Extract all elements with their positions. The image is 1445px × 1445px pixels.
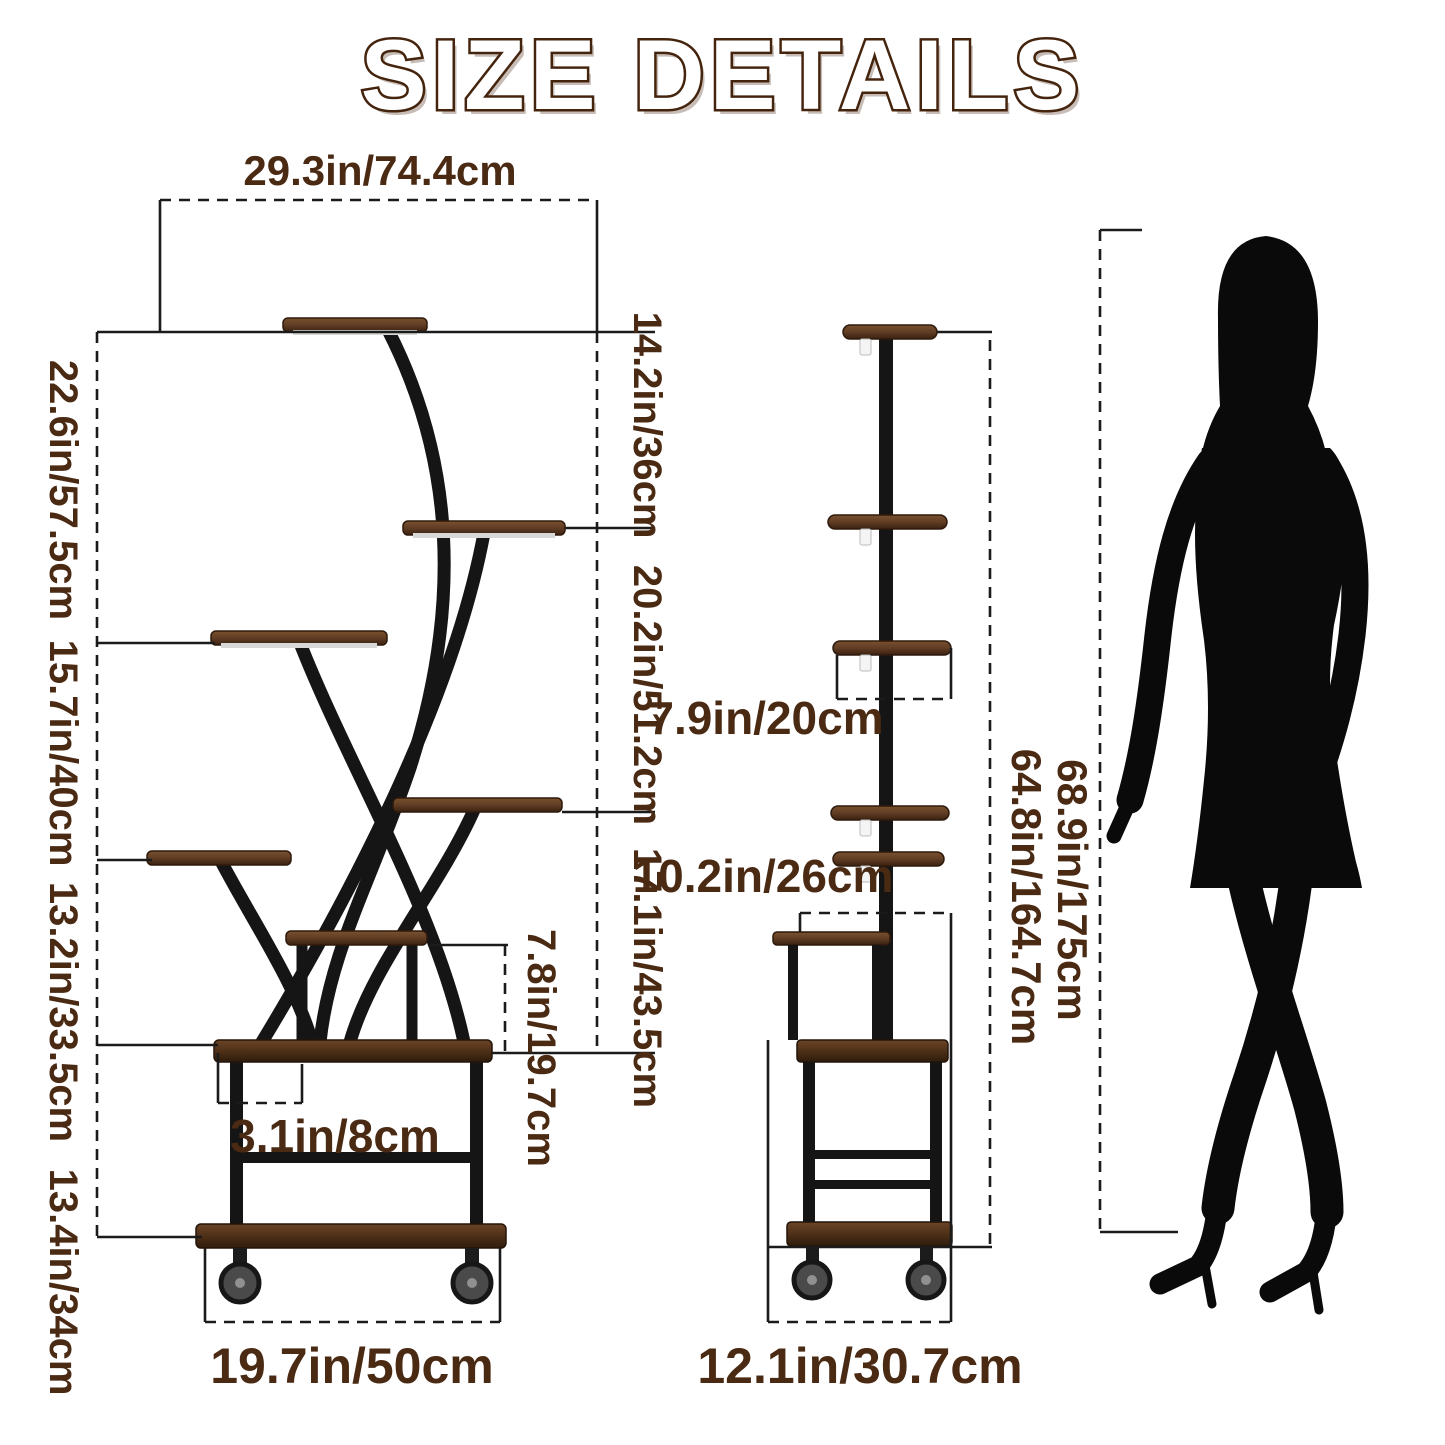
label-shelf-depth: 7.9in/20cm <box>648 692 883 744</box>
size-details-infographic: SIZE DETAILS <box>0 0 1445 1445</box>
caster-wheel <box>221 1248 259 1302</box>
label-height-segment-1: 22.6in/57.5cm <box>41 360 85 620</box>
side-shelf-2 <box>828 515 947 529</box>
label-height-segment-2: 15.7in/40cm <box>41 640 85 867</box>
front-shelf-2 <box>403 521 565 535</box>
front-shelf-4 <box>393 798 562 812</box>
side-shelf-3 <box>833 641 951 655</box>
total-height-comparison: 68.9in/175cm <box>1049 230 1362 1310</box>
shelf-bracket <box>221 643 377 648</box>
caster-wheel <box>794 1246 830 1298</box>
front-bottom-shelf <box>196 1224 506 1248</box>
label-height-segment-4: 13.4in/34cm <box>41 1169 85 1396</box>
side-base-top-board <box>773 932 890 945</box>
shelf-bracket <box>413 533 555 538</box>
shelf-connector <box>860 529 871 545</box>
side-view-diagram: 7.9in/20cm 10.2in/26cm 64.8in/164.7cm <box>633 325 1050 1394</box>
label-right-segment-1: 14.2in/36cm <box>625 312 669 539</box>
label-front-bottom-width: 19.7in/50cm <box>210 1338 494 1394</box>
diagram-canvas: 29.3in/74.4cm 22.6in/57.5cm 15.7in/40cm … <box>0 0 1445 1445</box>
label-frame-height: 64.8in/164.7cm <box>1003 749 1050 1046</box>
front-shelf-5 <box>147 851 291 865</box>
side-base-bottom-board <box>787 1222 952 1246</box>
dim-front-leg-inset: 3.1in/8cm <box>218 1053 440 1162</box>
side-shelf-1 <box>843 325 937 339</box>
label-front-top-width: 29.3in/74.4cm <box>243 147 516 194</box>
side-base-mid-board <box>797 1040 948 1062</box>
front-casters <box>221 1248 491 1302</box>
front-base-platform <box>214 1040 492 1062</box>
label-side-base-depth: 12.1in/30.7cm <box>697 1338 1022 1394</box>
dim-side-shelf-depth: 7.9in/20cm <box>648 648 951 744</box>
front-shelf-6 <box>286 931 427 945</box>
label-base-top-depth: 10.2in/26cm <box>633 850 894 902</box>
dim-front-top-width: 29.3in/74.4cm <box>160 147 597 332</box>
caster-wheel <box>908 1246 944 1298</box>
shelf-connector <box>860 655 871 671</box>
label-leg-inset: 3.1in/8cm <box>230 1110 440 1162</box>
shelf-connector <box>860 820 871 836</box>
dim-side-base-depth: 12.1in/30.7cm <box>697 1040 1022 1394</box>
dim-side-base-top-depth: 10.2in/26cm <box>633 850 951 1322</box>
front-shelf-1 <box>283 318 427 332</box>
label-small-shelf-height: 7.8in/19.7cm <box>519 929 563 1167</box>
side-shelf-4 <box>831 806 949 820</box>
side-base-cart <box>773 932 952 1298</box>
person-silhouette <box>1114 236 1362 1310</box>
label-height-segment-3: 13.2in/33.5cm <box>41 882 85 1142</box>
caster-wheel <box>453 1248 491 1302</box>
front-view-diagram: 29.3in/74.4cm 22.6in/57.5cm 15.7in/40cm … <box>41 147 669 1395</box>
dim-front-right-heights: 14.2in/36cm 20.2in/51.2cm 17.1in/43.5cm <box>492 312 669 1109</box>
label-total-height: 68.9in/175cm <box>1049 759 1096 1021</box>
front-shelf-3 <box>211 631 387 645</box>
shelf-connector <box>860 339 871 355</box>
